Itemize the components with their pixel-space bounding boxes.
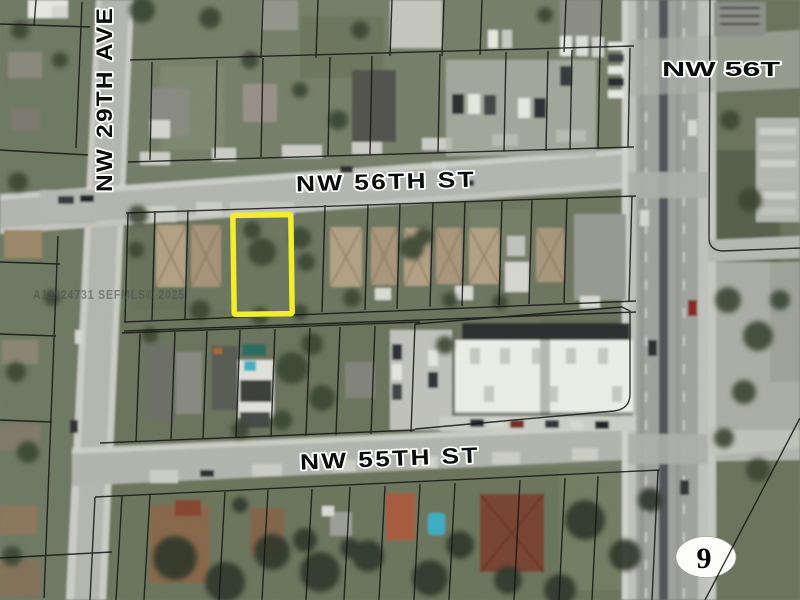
street-label-nw-56th-st-east: NW 56T (662, 59, 780, 81)
aerial-parcel-map[interactable]: 9 NW 56TH ST NW 55TH ST NW 29TH AVE NW 5… (0, 0, 800, 600)
street-label-nw-56th-st: NW 56TH ST (296, 167, 477, 197)
street-label-nw-29th-ave: NW 29TH AVE (92, 6, 117, 192)
map-canvas: 9 NW 56TH ST NW 55TH ST NW 29TH AVE NW 5… (0, 0, 800, 600)
mls-watermark: A11924731 SEFMLS© 2025 (33, 287, 185, 302)
route-shield-number: 9 (697, 542, 712, 575)
